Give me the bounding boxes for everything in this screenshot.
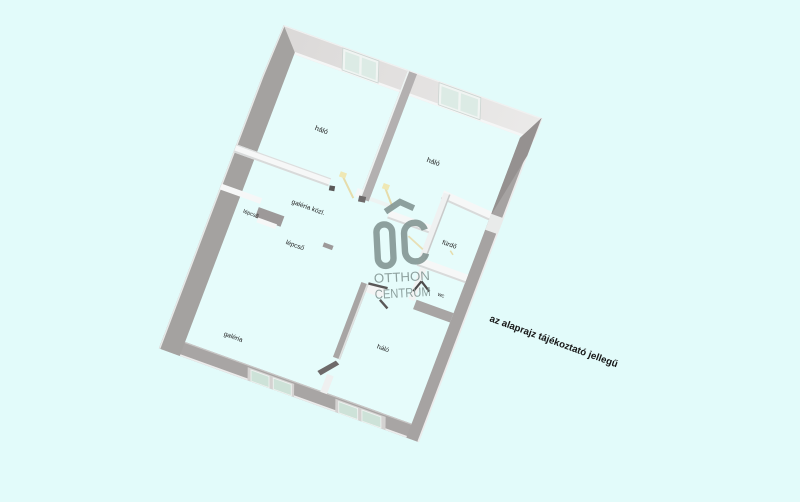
svg-text:CENTRUM: CENTRUM: [374, 284, 431, 302]
svg-text:OTTHON: OTTHON: [374, 268, 431, 286]
